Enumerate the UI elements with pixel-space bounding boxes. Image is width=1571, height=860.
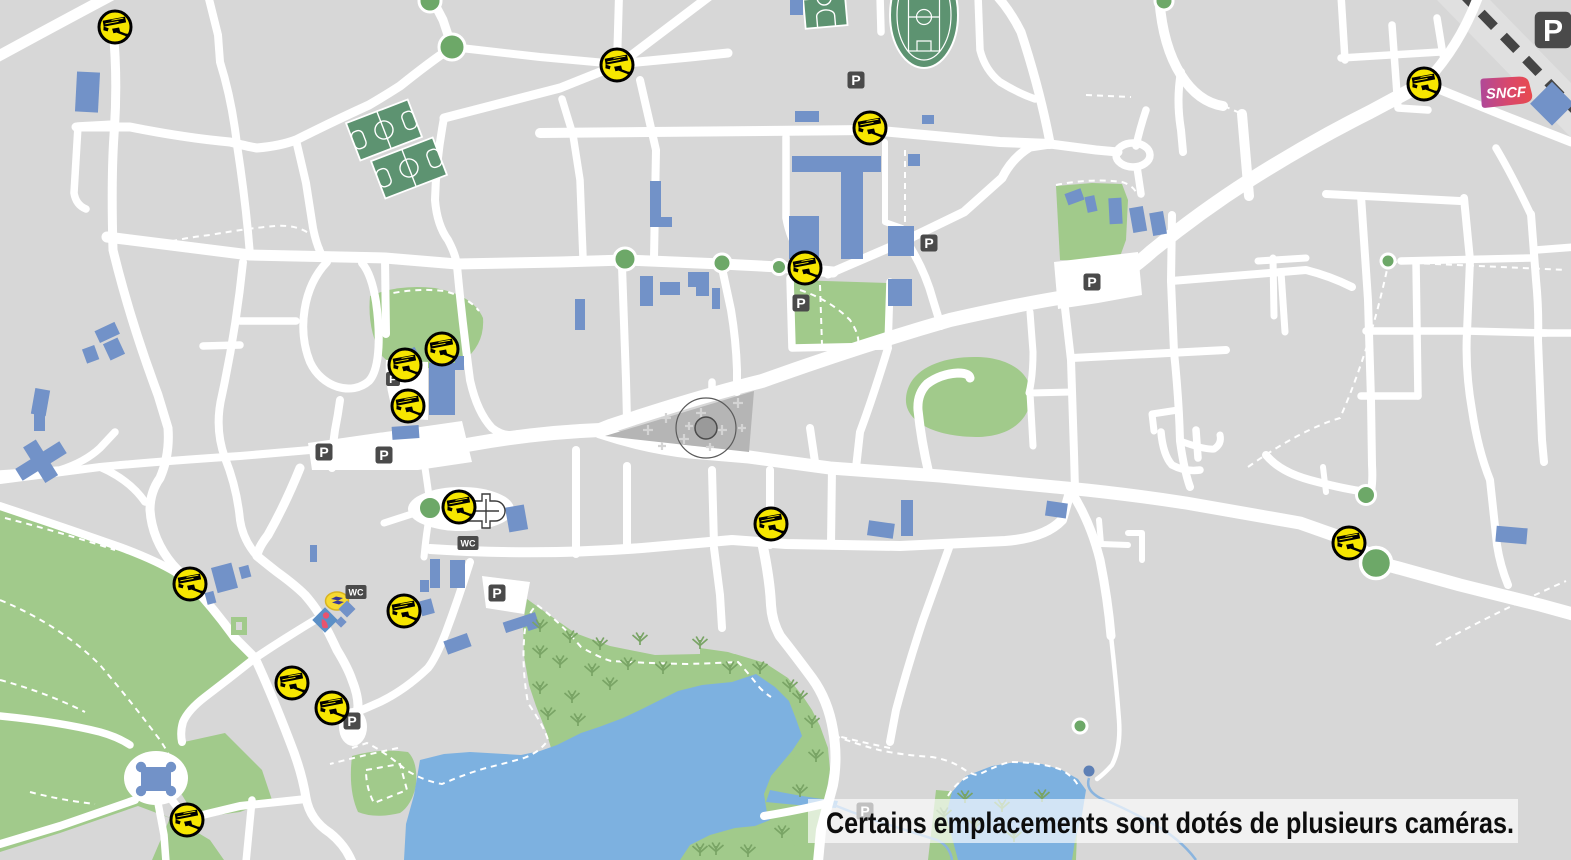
svg-text:SNCF: SNCF	[1486, 85, 1528, 103]
svg-text:Certains emplacements sont dot: Certains emplacements sont dotés de plus…	[826, 807, 1514, 840]
